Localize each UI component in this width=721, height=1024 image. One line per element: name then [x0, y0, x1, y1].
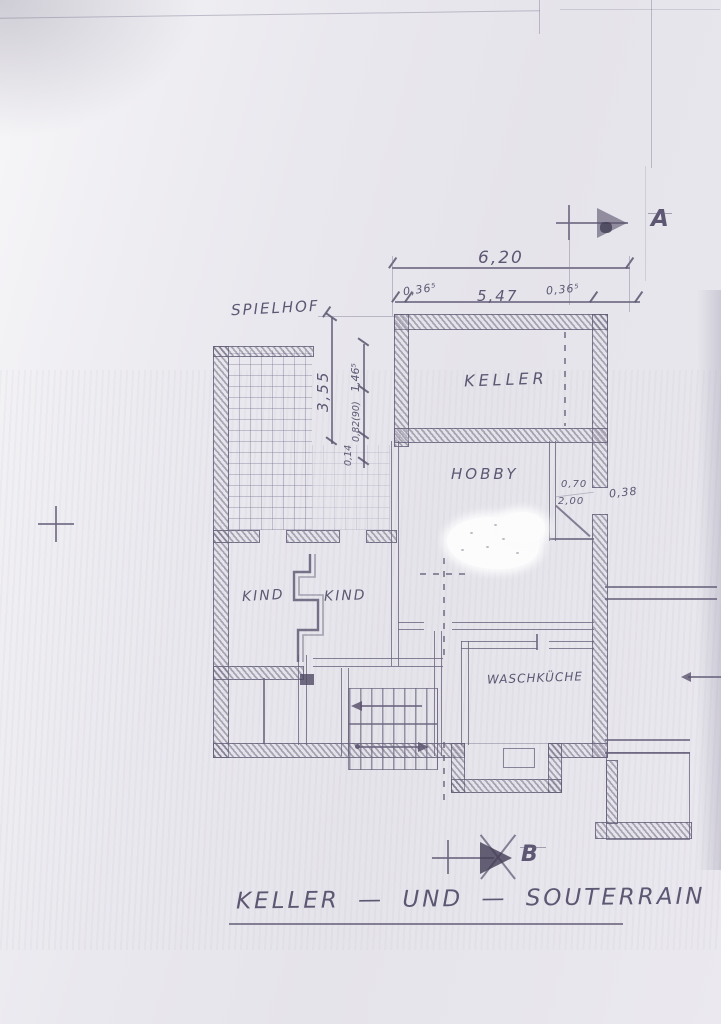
exterior-stair-landing — [606, 752, 690, 840]
wall-segment — [391, 441, 399, 666]
dim-left-wall: 0,36⁵ — [402, 281, 437, 299]
stair-arrow-line — [358, 746, 420, 748]
paper-crease — [645, 166, 646, 281]
section-b-tick — [447, 840, 449, 874]
wall-segment — [606, 760, 618, 824]
door-height-label: 2,00 — [558, 496, 584, 507]
smudge-speck — [470, 532, 473, 534]
chimney-zigzag — [288, 552, 332, 664]
wall-segment — [298, 655, 307, 745]
smudge-speck — [486, 546, 489, 548]
edge-arrow-icon — [681, 672, 691, 682]
paper-crease — [651, 0, 652, 168]
room-label-spielhof: SPIELHOF — [231, 297, 320, 320]
stair-arrow-line — [360, 705, 422, 707]
wall-segment — [286, 530, 340, 543]
wall-segment — [549, 641, 594, 649]
wall-segment — [263, 678, 265, 744]
axis-dash-line — [420, 573, 466, 575]
wall-segment — [592, 314, 608, 488]
spielhof-paving-grid — [312, 445, 390, 530]
dim-guide — [392, 256, 393, 316]
section-a-strike — [648, 213, 672, 214]
smudge-speck — [494, 524, 497, 526]
section-a-label: A — [651, 206, 671, 232]
terrace-edge-line — [605, 598, 717, 600]
wall-segment — [461, 641, 537, 649]
wall-segment — [549, 441, 556, 541]
dim-v1: 1,46⁵ — [349, 348, 362, 392]
dim-guide — [629, 256, 630, 312]
wall-segment — [452, 622, 594, 630]
sheet-title: KELLER — UND — SOUTERRAIN — [236, 884, 706, 915]
wall-segment — [213, 530, 260, 543]
dim-courtyard-depth: 3,55 — [314, 356, 332, 412]
wall-segment — [213, 666, 304, 680]
paper-crease — [539, 0, 540, 34]
paper-corner-shadow — [0, 0, 200, 140]
dim-right-wall: 0,36⁵ — [545, 282, 580, 298]
room-label-kind-left: KIND — [242, 587, 285, 605]
smudge-speck — [461, 549, 464, 551]
stair-arrow-left-icon — [351, 701, 362, 711]
wall-segment — [592, 514, 608, 758]
door-swing-line — [555, 505, 590, 537]
whiteout-smudge — [500, 512, 545, 542]
dim-offset: 0,38 — [608, 485, 638, 501]
wall-segment — [398, 622, 424, 630]
stair-arrow-right-icon — [418, 742, 429, 752]
wall-pier — [300, 674, 314, 685]
stair-arrow-dot — [355, 744, 360, 749]
section-b-label: B — [521, 842, 540, 867]
smudge-speck — [516, 552, 519, 554]
registration-cross-v — [55, 506, 57, 542]
paper-right-shadow — [697, 290, 721, 870]
wall-segment — [549, 538, 594, 540]
section-b-arrow-icon — [480, 842, 512, 874]
dim-inner-width: 5,47 — [477, 287, 518, 305]
dim-overall-width: 6,20 — [478, 248, 524, 268]
scanned-floor-plan-sheet: A 6,20 0,36⁵ 5,47 0,36⁵ SPIELHOF 3,55 1,… — [0, 0, 721, 1024]
dim-v2: 0,82(90) — [351, 392, 362, 442]
wall-segment — [213, 346, 314, 357]
paper-crease — [560, 9, 720, 10]
wall-segment — [394, 314, 608, 330]
axis-dash-line — [564, 332, 566, 426]
section-a-arrow-fill — [600, 222, 612, 233]
section-b-strike — [520, 847, 546, 848]
terrace-edge-line — [605, 739, 690, 741]
wall-segment — [461, 641, 469, 745]
room-label-keller: KELLER — [464, 369, 548, 391]
wall-segment — [213, 346, 229, 758]
bay-pier — [503, 748, 535, 768]
room-label-kind-right: KIND — [324, 587, 367, 604]
wall-segment — [451, 779, 562, 793]
smudge-speck — [502, 538, 505, 540]
wall-segment — [394, 428, 608, 443]
sheet-title-underline — [229, 923, 623, 925]
wall-segment — [313, 658, 443, 667]
axis-dash-line — [443, 742, 445, 804]
terrace-edge-line — [605, 586, 717, 588]
room-label-waschkueche: WASCHKÜCHE — [487, 669, 583, 686]
door-jamb-tick — [536, 634, 538, 650]
edge-arrow-line — [688, 676, 721, 678]
spielhof-paving-grid — [228, 350, 312, 530]
door-width-label: 0,70 — [561, 479, 587, 490]
wall-segment — [463, 743, 548, 744]
room-label-hobby: HOBBY — [451, 465, 519, 483]
